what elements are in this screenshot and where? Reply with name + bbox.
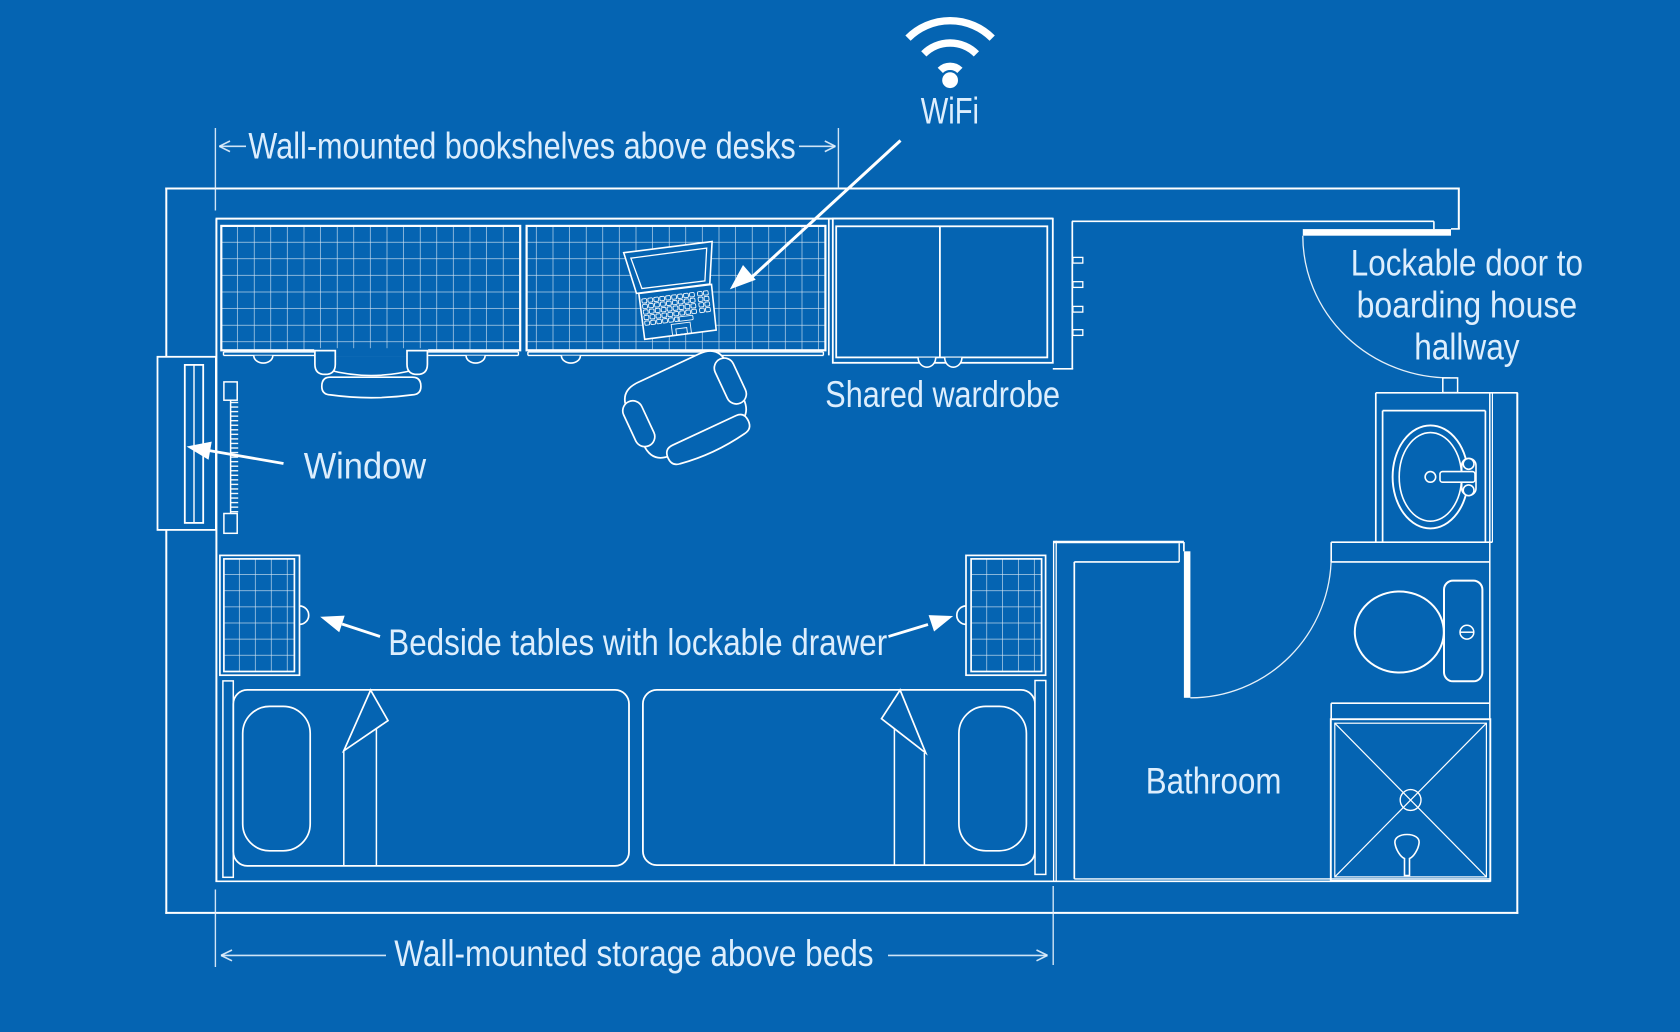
svg-text:boarding house: boarding house xyxy=(1357,284,1578,325)
svg-text:Wall-mounted storage above bed: Wall-mounted storage above beds xyxy=(394,933,873,974)
svg-text:Shared wardrobe: Shared wardrobe xyxy=(825,374,1060,415)
svg-text:Bathroom: Bathroom xyxy=(1146,760,1282,801)
svg-text:Window: Window xyxy=(304,446,427,487)
svg-text:hallway: hallway xyxy=(1414,327,1520,368)
svg-text:Lockable door to: Lockable door to xyxy=(1351,243,1583,284)
svg-text:WiFi: WiFi xyxy=(921,91,979,132)
svg-text:Bedside tables with lockable d: Bedside tables with lockable drawer xyxy=(388,622,887,663)
svg-text:Wall-mounted bookshelves above: Wall-mounted bookshelves above desks xyxy=(248,126,795,167)
